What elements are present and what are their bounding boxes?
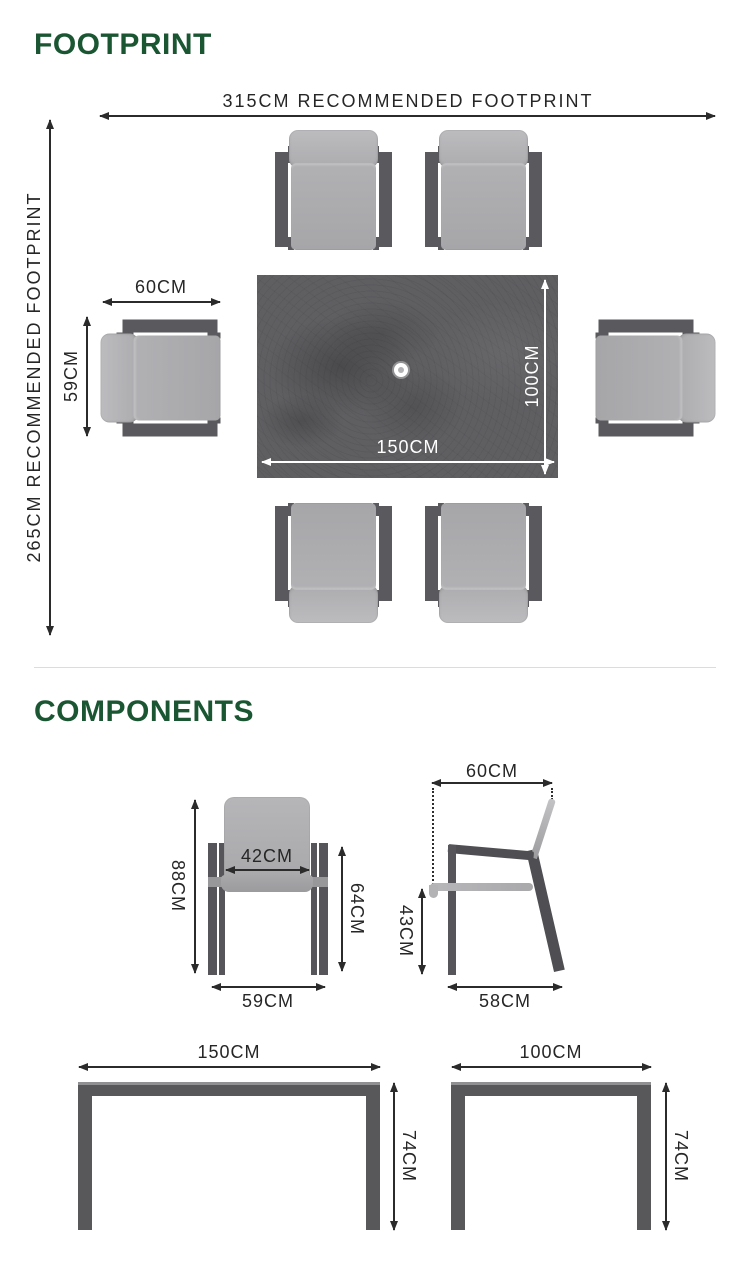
table-front-height-arrow — [393, 1083, 395, 1230]
chair-top-view-bottom-right — [425, 503, 542, 623]
chair-top-view-top-right — [425, 130, 542, 250]
chair-arm-height-arrow — [341, 847, 343, 971]
chair-side-front-leg — [448, 845, 456, 975]
footprint-width-label: 315CM RECOMMENDED FOOTPRINT — [222, 92, 593, 110]
chair-armrest — [123, 320, 218, 333]
chair-armrest — [599, 320, 694, 333]
chair-front-leg — [319, 843, 328, 975]
chair-side-backrest — [530, 798, 556, 859]
chair-side-back-leg — [526, 849, 565, 972]
table-side-height-arrow — [665, 1083, 667, 1230]
chair-front-width-arrow — [212, 986, 325, 988]
chair-front-leg — [311, 843, 317, 975]
chair-seat-width-label: 42CM — [241, 847, 293, 865]
chair-height-arrow — [194, 800, 196, 973]
chair-width-label: 60CM — [135, 278, 187, 296]
chair-armrest — [529, 152, 542, 247]
furniture-dimension-diagram: FOOTPRINT 315CM RECOMMENDED FOOTPRINT 26… — [0, 0, 750, 1266]
table-length-arrow — [262, 461, 554, 463]
chair-armrest — [275, 506, 288, 601]
chair-top-view-left — [101, 320, 221, 437]
chair-top-view-top-left — [275, 130, 392, 250]
chair-seat-cushion — [134, 336, 221, 421]
chair-seat-cushion — [291, 163, 376, 250]
chair-armrest — [379, 152, 392, 247]
table-front-leg — [78, 1094, 92, 1230]
chair-seat-cushion — [596, 336, 683, 421]
chair-arm-height-label: 64CM — [348, 883, 366, 935]
chair-armrest — [599, 424, 694, 437]
footprint-section-title: FOOTPRINT — [34, 28, 212, 62]
table-depth-label: 100CM — [523, 344, 541, 407]
chair-seat-cushion — [441, 163, 526, 250]
chair-front-seat — [221, 875, 313, 892]
chair-side-depth-label: 60CM — [466, 762, 518, 780]
table-side-height-label: 74CM — [672, 1130, 690, 1182]
chair-armrest — [425, 152, 438, 247]
table-side-depth-label: 100CM — [519, 1043, 582, 1061]
table-depth-arrow — [544, 280, 546, 474]
components-section-title: COMPONENTS — [34, 695, 254, 729]
footprint-height-label: 265CM RECOMMENDED FOOTPRINT — [25, 191, 43, 562]
chair-top-view-right — [596, 320, 716, 437]
table-front-length-label: 150CM — [197, 1043, 260, 1061]
chair-armrest — [529, 506, 542, 601]
chair-seat-width-arrow — [226, 869, 309, 871]
chair-side-depth-arrow — [432, 782, 552, 784]
section-divider — [34, 667, 716, 668]
chair-depth-label: 59CM — [62, 350, 80, 402]
chair-seat-cushion — [441, 503, 526, 590]
chair-backrest-cushion — [678, 334, 716, 423]
table-front-leg — [366, 1094, 380, 1230]
table-front-height-label: 74CM — [400, 1130, 418, 1182]
table-side-top — [451, 1082, 651, 1096]
chair-front-width-label: 59CM — [242, 992, 294, 1010]
table-side-depth-arrow — [452, 1066, 651, 1068]
table-front-length-arrow — [79, 1066, 380, 1068]
chair-top-view-bottom-left — [275, 503, 392, 623]
table-length-label: 150CM — [376, 438, 439, 456]
chair-armrest — [123, 424, 218, 437]
parasol-hole — [394, 363, 408, 377]
table-side-leg — [451, 1094, 465, 1230]
footprint-height-arrow — [49, 120, 51, 635]
chair-front-leg — [208, 843, 217, 975]
chair-width-arrow — [103, 301, 220, 303]
chair-height-label: 88CM — [169, 860, 187, 912]
chair-depth-arrow — [86, 317, 88, 436]
chair-backrest-cushion — [439, 585, 528, 623]
chair-base-depth-arrow — [448, 986, 562, 988]
table-side-leg — [637, 1094, 651, 1230]
chair-base-depth-label: 58CM — [479, 992, 531, 1010]
chair-seat-cushion — [291, 503, 376, 590]
chair-seat-height-label: 43CM — [397, 905, 415, 957]
chair-seat-height-arrow — [421, 889, 423, 974]
chair-backrest-cushion — [289, 585, 378, 623]
chair-armrest — [379, 506, 392, 601]
chair-side-seat — [430, 883, 533, 891]
chair-side-armrest — [448, 844, 534, 860]
chair-armrest — [275, 152, 288, 247]
chair-side-guide-line — [432, 788, 434, 888]
table-front-top — [78, 1082, 380, 1096]
footprint-width-arrow — [100, 115, 715, 117]
chair-armrest — [425, 506, 438, 601]
